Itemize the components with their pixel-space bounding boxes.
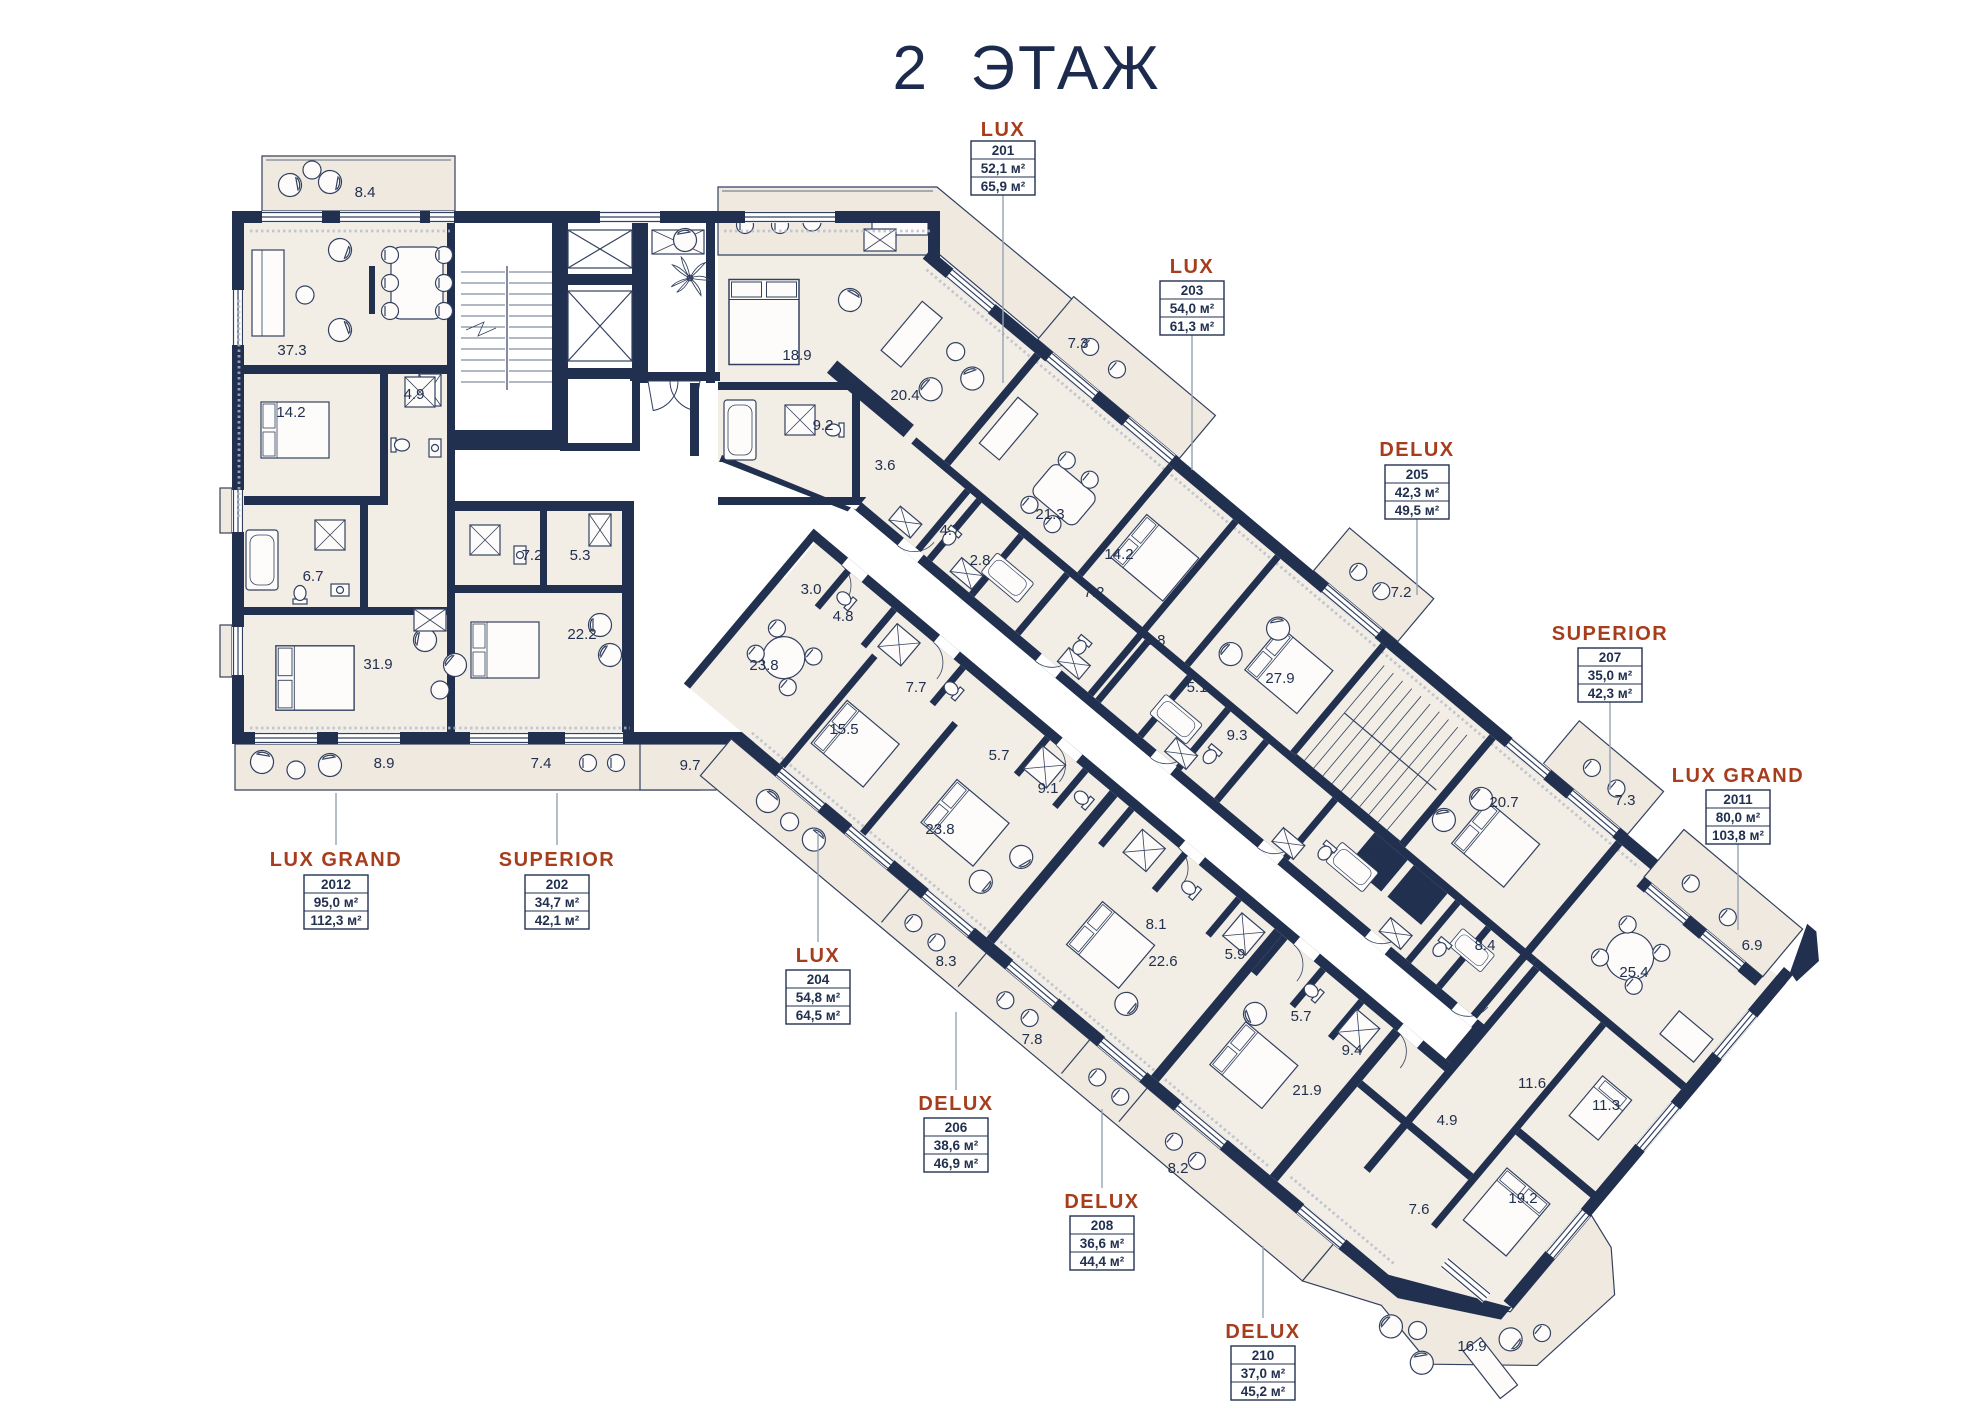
svg-text:9.4: 9.4	[1342, 1042, 1363, 1059]
svg-text:204: 204	[807, 972, 830, 987]
svg-text:27.9: 27.9	[1265, 670, 1294, 687]
svg-text:42,1 м²: 42,1 м²	[535, 913, 580, 928]
svg-text:112,3 м²: 112,3 м²	[310, 913, 362, 928]
svg-text:202: 202	[546, 877, 569, 892]
svg-text:7.3: 7.3	[1615, 792, 1636, 809]
svg-text:LUX: LUX	[796, 945, 841, 967]
svg-text:42,3 м²: 42,3 м²	[1395, 485, 1440, 500]
svg-text:6.7: 6.7	[303, 568, 324, 585]
svg-text:80,0 м²: 80,0 м²	[1716, 810, 1761, 825]
svg-text:4.8: 4.8	[833, 608, 854, 625]
svg-text:45,2 м²: 45,2 м²	[1241, 1384, 1286, 1399]
svg-text:2 ЭТАЖ: 2 ЭТАЖ	[893, 34, 1162, 103]
svg-text:4.9: 4.9	[404, 386, 425, 403]
svg-text:23.8: 23.8	[925, 821, 954, 838]
svg-text:205: 205	[1406, 467, 1429, 482]
svg-text:8.3: 8.3	[936, 953, 957, 970]
svg-text:9.7: 9.7	[680, 757, 701, 774]
svg-text:22.6: 22.6	[1148, 953, 1177, 970]
svg-text:LUX GRAND: LUX GRAND	[270, 849, 402, 871]
svg-text:5.7: 5.7	[989, 747, 1010, 764]
svg-text:20.7: 20.7	[1489, 794, 1518, 811]
svg-text:8.9: 8.9	[374, 755, 395, 772]
svg-text:207: 207	[1599, 650, 1622, 665]
svg-text:206: 206	[945, 1120, 968, 1135]
svg-text:20.4: 20.4	[890, 387, 919, 404]
svg-text:LUX: LUX	[981, 119, 1026, 141]
svg-text:44,4 м²: 44,4 м²	[1080, 1254, 1125, 1269]
svg-text:2012: 2012	[321, 877, 351, 892]
svg-text:64,5 м²: 64,5 м²	[796, 1008, 841, 1023]
svg-text:49,5 м²: 49,5 м²	[1395, 503, 1440, 518]
svg-text:7.2: 7.2	[1084, 584, 1105, 601]
svg-text:8.1: 8.1	[1146, 916, 1167, 933]
svg-text:14.2: 14.2	[1104, 546, 1133, 563]
svg-text:14.2: 14.2	[276, 404, 305, 421]
svg-text:46,9 м²: 46,9 м²	[934, 1156, 979, 1171]
svg-text:9.3: 9.3	[1227, 727, 1248, 744]
svg-text:35,0 м²: 35,0 м²	[1588, 668, 1633, 683]
svg-text:5.3: 5.3	[570, 547, 591, 564]
svg-text:3.0: 3.0	[801, 581, 822, 598]
svg-text:SUPERIOR: SUPERIOR	[499, 849, 615, 871]
svg-text:3.8: 3.8	[1145, 632, 1166, 649]
svg-text:34,7 м²: 34,7 м²	[535, 895, 580, 910]
svg-text:103,8 м²: 103,8 м²	[1712, 828, 1765, 843]
svg-text:DELUX: DELUX	[1225, 1321, 1300, 1343]
svg-text:5.9: 5.9	[1225, 946, 1246, 963]
svg-text:SUPERIOR: SUPERIOR	[1552, 623, 1668, 645]
svg-text:15.5: 15.5	[829, 721, 858, 738]
svg-text:7.7: 7.7	[906, 679, 927, 696]
svg-text:210: 210	[1252, 1348, 1275, 1363]
svg-text:3.6: 3.6	[875, 457, 896, 474]
svg-text:21.9: 21.9	[1292, 1082, 1321, 1099]
svg-text:5.1: 5.1	[1187, 679, 1208, 696]
svg-text:54,8 м²: 54,8 м²	[796, 990, 841, 1005]
svg-text:8.2: 8.2	[1168, 1160, 1189, 1177]
svg-text:11.3: 11.3	[1592, 1097, 1620, 1114]
svg-text:37,0 м²: 37,0 м²	[1241, 1366, 1286, 1381]
svg-text:7.8: 7.8	[1022, 1031, 1043, 1048]
svg-text:61,3 м²: 61,3 м²	[1170, 319, 1215, 334]
svg-text:54,0 м²: 54,0 м²	[1170, 301, 1215, 316]
svg-text:201: 201	[992, 143, 1015, 158]
svg-text:36,6 м²: 36,6 м²	[1080, 1236, 1125, 1251]
svg-text:DELUX: DELUX	[1064, 1191, 1139, 1213]
svg-text:DELUX: DELUX	[1379, 439, 1454, 461]
svg-text:9.1: 9.1	[1038, 780, 1059, 797]
svg-text:13.8: 13.8	[849, 208, 878, 225]
svg-text:65,9 м²: 65,9 м²	[981, 179, 1026, 194]
svg-text:2011: 2011	[1723, 792, 1753, 807]
svg-text:7.3: 7.3	[1068, 335, 1089, 352]
svg-text:23.8: 23.8	[749, 657, 778, 674]
svg-text:5.9: 5.9	[1409, 877, 1430, 894]
svg-text:DELUX: DELUX	[918, 1093, 993, 1115]
svg-text:42,3 м²: 42,3 м²	[1588, 686, 1633, 701]
svg-text:16.9: 16.9	[1457, 1338, 1486, 1355]
svg-text:LUX GRAND: LUX GRAND	[1672, 765, 1804, 787]
svg-text:4.9: 4.9	[1437, 1112, 1458, 1129]
svg-text:18.9: 18.9	[782, 347, 811, 364]
svg-text:7.2: 7.2	[1391, 584, 1412, 601]
svg-text:19.2: 19.2	[1508, 1190, 1537, 1207]
svg-text:37.3: 37.3	[277, 342, 306, 359]
svg-text:22.2: 22.2	[567, 626, 596, 643]
svg-text:25.4: 25.4	[1619, 964, 1648, 981]
svg-text:21.3: 21.3	[1035, 506, 1064, 523]
svg-text:7.2: 7.2	[522, 547, 543, 564]
svg-text:7.4: 7.4	[531, 755, 552, 772]
svg-text:38,6 м²: 38,6 м²	[934, 1138, 979, 1153]
svg-text:8.4: 8.4	[355, 184, 376, 201]
svg-text:5.7: 5.7	[1291, 1008, 1312, 1025]
svg-text:6.9: 6.9	[1742, 937, 1763, 954]
svg-text:203: 203	[1181, 283, 1204, 298]
svg-text:7.6: 7.6	[1409, 1201, 1430, 1218]
svg-text:9.2: 9.2	[813, 417, 834, 434]
svg-text:8.4: 8.4	[1475, 937, 1496, 954]
svg-text:208: 208	[1091, 1218, 1114, 1233]
svg-text:95,0 м²: 95,0 м²	[314, 895, 359, 910]
svg-text:52,1 м²: 52,1 м²	[981, 161, 1026, 176]
svg-text:2.8: 2.8	[970, 552, 991, 569]
svg-text:11.6: 11.6	[1518, 1075, 1546, 1092]
svg-text:LUX: LUX	[1170, 256, 1215, 278]
svg-text:31.9: 31.9	[363, 656, 392, 673]
svg-text:4.7: 4.7	[940, 522, 961, 539]
